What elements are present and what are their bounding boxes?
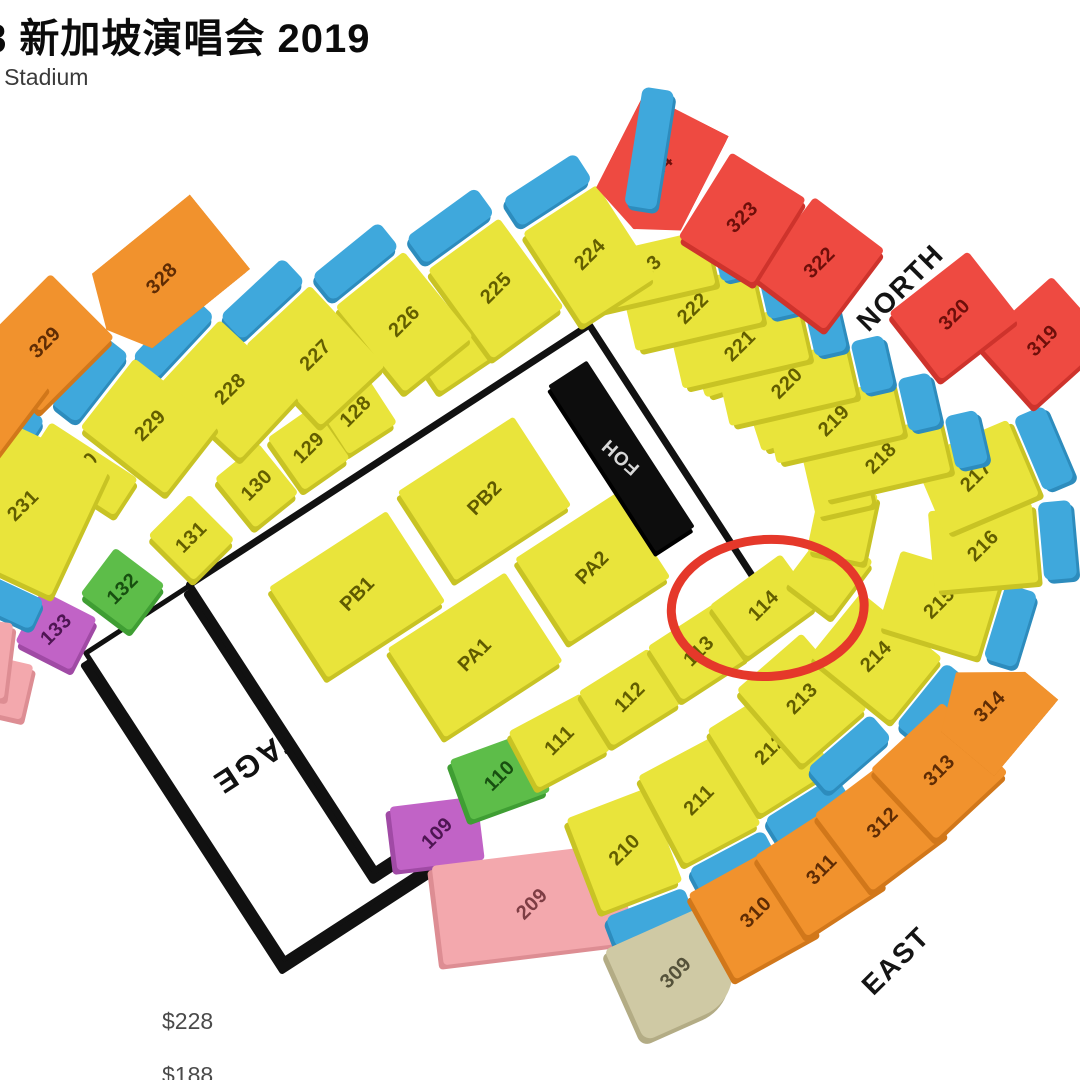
- seating-map-screenshot: 8 新加坡演唱会 2019 r Stadium STAGE PB1 PB2 PA…: [0, 0, 1080, 1080]
- price-tier-2: $188: [162, 1062, 213, 1080]
- page-title: 8 新加坡演唱会 2019: [0, 6, 370, 64]
- venue-subtitle: r Stadium: [0, 64, 88, 91]
- east-label: EAST: [856, 920, 937, 1001]
- page-header: 8 新加坡演唱会 2019: [0, 6, 370, 64]
- title-fragment: 8: [0, 17, 7, 61]
- stadium-map: STAGE PB1 PB2 PA1 PA2 FOH 109 110 111 11…: [0, 0, 1080, 1080]
- section-231: 231: [0, 417, 110, 597]
- price-tier-1: $228: [162, 1008, 213, 1035]
